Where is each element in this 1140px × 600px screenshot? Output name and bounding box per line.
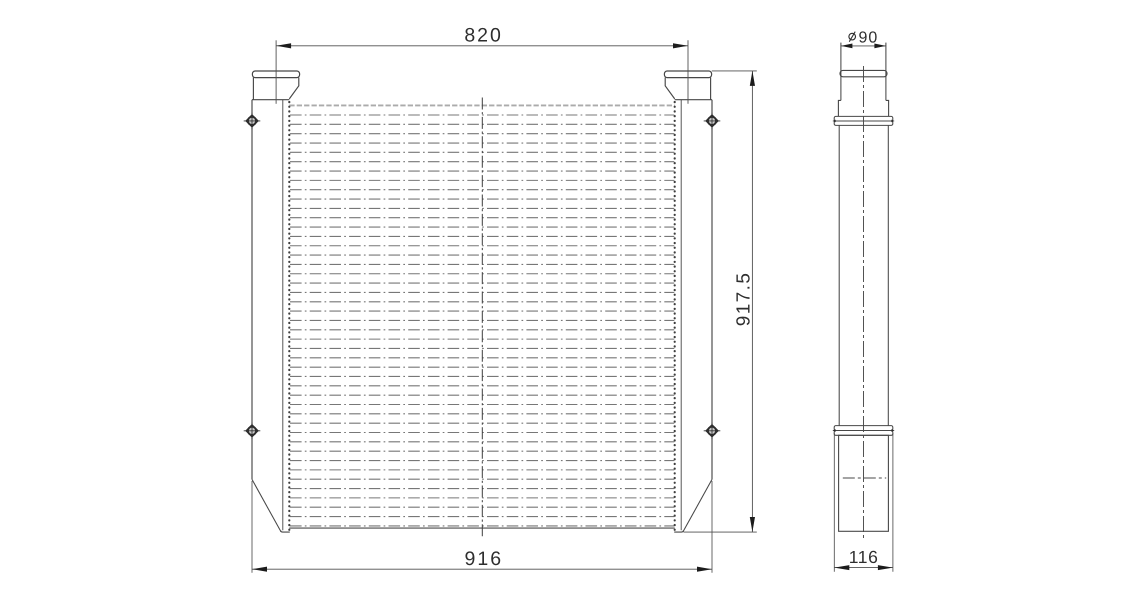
svg-text:90: 90 — [859, 29, 879, 46]
svg-text:916: 916 — [465, 548, 504, 570]
svg-text:917.5: 917.5 — [733, 272, 754, 327]
svg-text:820: 820 — [464, 25, 503, 47]
svg-text:116: 116 — [849, 547, 879, 567]
